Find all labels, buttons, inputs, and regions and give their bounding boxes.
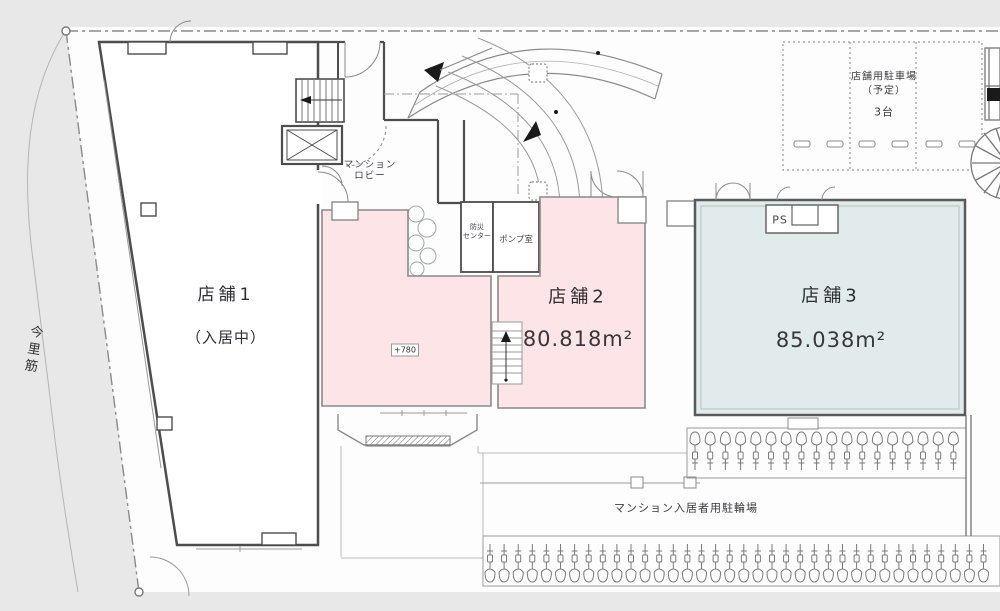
bike-symbol: [654, 544, 664, 582]
bike-symbol: [948, 432, 958, 470]
bike-symbol: [570, 544, 580, 582]
bike-symbol: [682, 544, 692, 582]
right-edge: [971, 48, 1000, 199]
bike-symbol: [697, 544, 707, 582]
bike-symbol: [781, 432, 791, 470]
bike-symbol: [852, 544, 862, 582]
disaster-center-label-line2: センター: [463, 232, 491, 240]
bike-symbol: [485, 544, 495, 582]
bike-symbol: [753, 544, 763, 582]
bike-symbol: [872, 432, 882, 470]
bike-symbol: [598, 544, 608, 582]
overhang-dashline: [384, 94, 518, 196]
bike-symbol: [725, 544, 735, 582]
bike-symbol: [705, 432, 715, 470]
bike-symbol: [964, 544, 974, 582]
bike-symbol: [894, 544, 904, 582]
bike-symbol: [823, 544, 833, 582]
bike-symbol: [809, 544, 819, 582]
bike-symbol: [903, 432, 913, 470]
disaster-center-label-line1: 防災: [470, 223, 484, 231]
bike-symbol: [513, 544, 523, 582]
bike-symbol: [556, 544, 566, 582]
bike-symbol: [936, 544, 946, 582]
bike-symbol: [866, 544, 876, 582]
bike-symbol: [739, 544, 749, 582]
parking-title: 店舗用駐車場: [851, 71, 917, 83]
bike-symbol: [922, 544, 932, 582]
bike-symbol: [541, 544, 551, 582]
bike-symbol: [918, 432, 928, 470]
bike-symbol: [812, 432, 822, 470]
shop2-entry-doors: [565, 171, 643, 197]
spiral-stair: [971, 127, 1000, 199]
bike-symbol: [690, 432, 700, 470]
shop2-stairs: [492, 322, 522, 384]
ramp-canopy: [408, 38, 662, 205]
parking-subtitle: （予定）: [862, 85, 906, 97]
pipe-shaft-label: PS: [772, 215, 788, 228]
shop3-name: 店舗3: [801, 287, 860, 308]
bike-rack-upper: [690, 432, 958, 470]
shop1-name: 店舗1: [198, 286, 255, 306]
shop3-area: 85.038m²: [776, 328, 886, 352]
parking-capacity: 3台: [874, 107, 894, 120]
staircase: [296, 79, 344, 122]
bike-symbol: [612, 544, 622, 582]
bike-symbol: [795, 544, 805, 582]
shop2-area: 80.818m²: [523, 327, 633, 351]
bicycle-parking-label: マンション入居者用駐輪場: [614, 503, 758, 516]
bike-symbol: [640, 544, 650, 582]
floor-level-annotation: +780: [391, 344, 419, 357]
bike-symbol: [888, 432, 898, 470]
bike-symbol: [720, 432, 730, 470]
bike-symbol: [827, 432, 837, 470]
pump-room-label: ポンプ室: [499, 236, 533, 246]
side-wall: [966, 415, 971, 536]
elevator: [282, 126, 342, 164]
bike-symbol: [950, 544, 960, 582]
bike-symbol: [880, 544, 890, 582]
bike-symbol: [838, 544, 848, 582]
planting: [408, 206, 436, 276]
bike-rack-lower: [485, 544, 989, 582]
bike-symbol: [979, 544, 989, 582]
bike-symbol: [796, 432, 806, 470]
shop2-windows: [380, 410, 467, 416]
floorplan-canvas: 今里筋 店舗用駐車場 （予定） 3台 マンション ロビー 防災 センター ポンプ…: [0, 0, 1000, 611]
bike-symbol: [751, 432, 761, 470]
shop3-doors: [716, 183, 835, 200]
bike-symbol: [711, 544, 721, 582]
bike-symbol: [527, 544, 537, 582]
wheel-stops: [794, 141, 975, 147]
bike-symbol: [908, 544, 918, 582]
bike-symbol: [767, 544, 777, 582]
shop1-status: （入居中）: [186, 329, 266, 346]
bike-symbol: [584, 544, 594, 582]
bike-symbol: [933, 432, 943, 470]
bike-symbol: [626, 544, 636, 582]
shop2-name: 店舗2: [548, 288, 607, 309]
bike-symbol: [766, 432, 776, 470]
lobby-label-line2: ロビー: [354, 172, 386, 183]
bike-symbol: [842, 432, 852, 470]
bike-symbol: [781, 544, 791, 582]
direction-arrows: [424, 51, 600, 142]
bike-symbol: [736, 432, 746, 470]
bike-symbol: [499, 544, 509, 582]
bicycle-area: [483, 415, 1000, 586]
bike-symbol: [857, 432, 867, 470]
bike-symbol: [668, 544, 678, 582]
